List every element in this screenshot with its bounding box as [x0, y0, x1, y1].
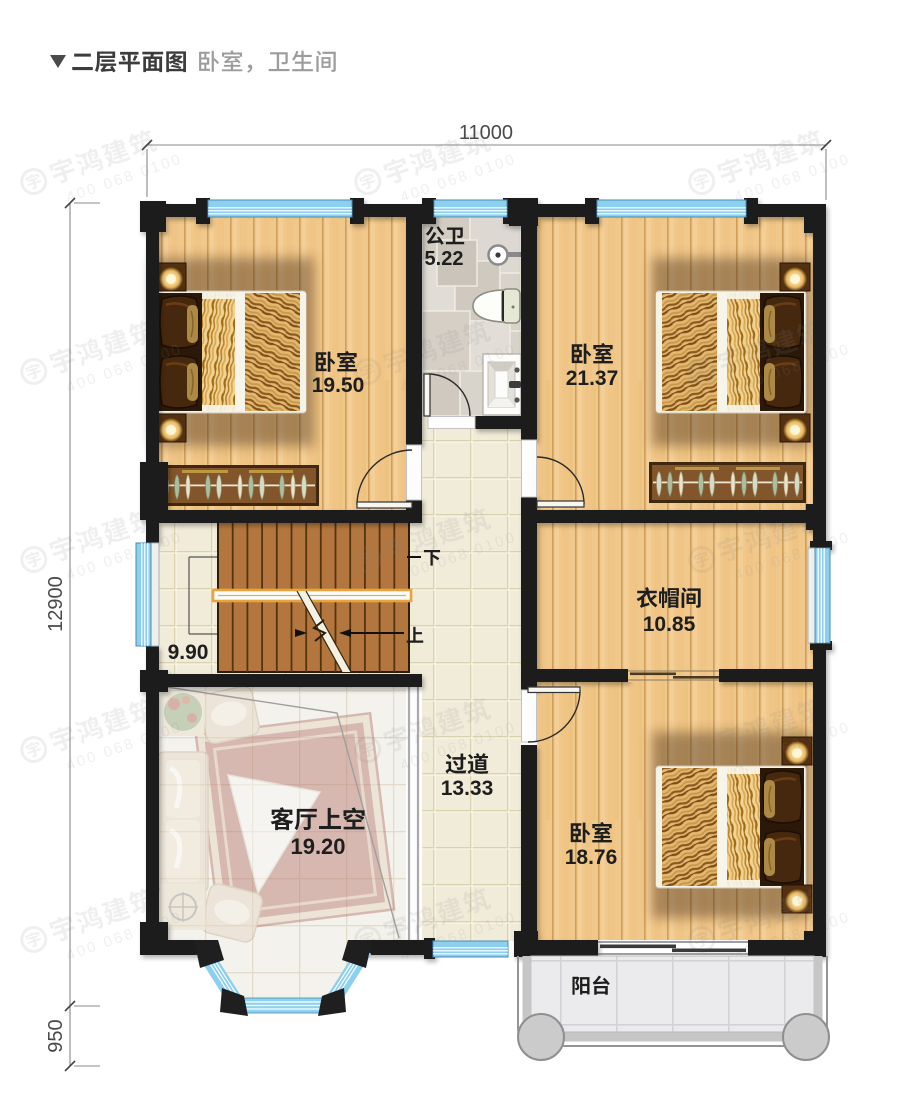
svg-text:11000: 11000 — [459, 122, 513, 144]
svg-text:13.33: 13.33 — [441, 777, 494, 800]
svg-text:5.22: 5.22 — [425, 248, 464, 270]
svg-text:10.85: 10.85 — [643, 613, 696, 636]
svg-text:19.20: 19.20 — [290, 834, 345, 859]
svg-text:21.37: 21.37 — [566, 367, 619, 390]
svg-text:18.76: 18.76 — [565, 846, 618, 869]
svg-text:950: 950 — [45, 1019, 67, 1052]
svg-text:19.50: 19.50 — [312, 374, 365, 397]
svg-text:12900: 12900 — [45, 576, 67, 632]
svg-text:9.90: 9.90 — [168, 641, 209, 664]
